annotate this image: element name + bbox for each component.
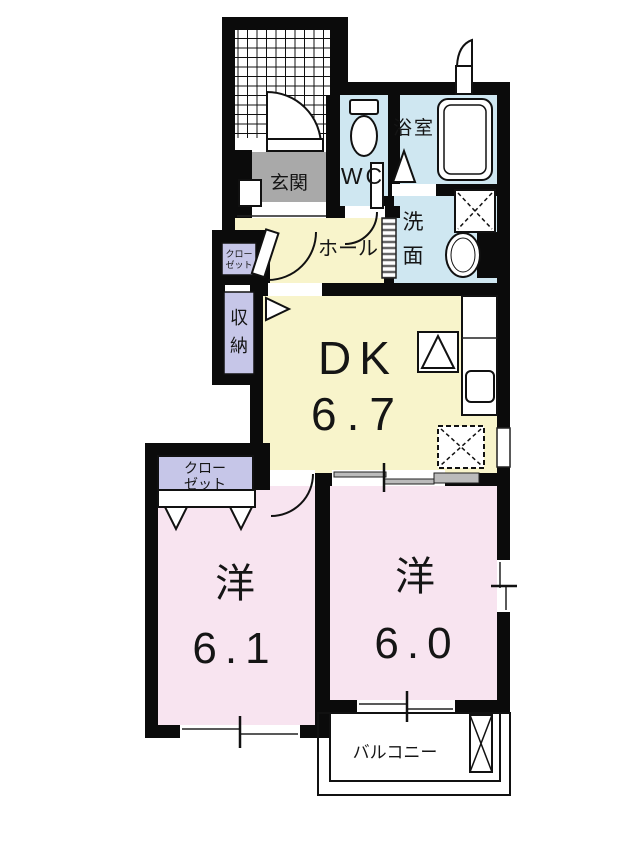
hall-closet <box>222 243 256 275</box>
label-wash-1: 洗 <box>403 211 424 234</box>
label-wash-2: 面 <box>403 245 424 268</box>
label-bedroom2: 洋 <box>395 555 435 599</box>
refrigerator-space-icon <box>438 426 484 468</box>
kitchen-counter <box>462 296 497 415</box>
label-hall-closet-2: ゼット <box>225 259 252 270</box>
bedroom1-closet-front <box>158 490 255 507</box>
label-dk-area: 6.7 <box>311 388 405 440</box>
accordion-door-icon <box>382 218 396 278</box>
balcony-unit-icon <box>470 715 492 772</box>
bath-door-opening <box>392 184 436 196</box>
label-hall-closet-1: クロー <box>225 249 252 259</box>
window-dk-right <box>497 428 510 467</box>
storage-room <box>224 292 254 374</box>
washbasin-icon <box>446 233 480 277</box>
label-bedroom2-area: 6.0 <box>374 619 459 668</box>
dk-bedroom1-door-opening <box>270 470 315 486</box>
washing-machine-icon <box>455 190 495 232</box>
label-dk: DK <box>318 332 398 384</box>
bathtub-icon <box>438 99 492 180</box>
label-storage-2: 納 <box>230 336 248 356</box>
hall-dk-door-opening <box>268 283 322 296</box>
label-balcony: バルコニー <box>353 743 438 762</box>
floor-plan-svg: 玄関 WC 浴室 洗 面 ホール クロー ゼット 収 納 DK 6.7 クロー … <box>0 0 640 853</box>
floor-plan: 玄関 WC 浴室 洗 面 ホール クロー ゼット 収 納 DK 6.7 クロー … <box>0 0 640 853</box>
label-storage-1: 収 <box>230 308 248 328</box>
label-genkan: 玄関 <box>270 172 308 194</box>
label-bedroom1-closet-1: クロー <box>184 460 226 476</box>
label-bedroom1-area: 6.1 <box>192 624 277 673</box>
label-bedroom1-closet-2: ゼット <box>184 476 226 492</box>
range-icon <box>418 332 458 372</box>
label-hall: ホール <box>318 238 378 260</box>
kitchen-sink-icon <box>466 371 494 402</box>
shoe-cabinet-icon <box>239 180 261 206</box>
toilet-icon <box>350 100 378 156</box>
label-bath: 浴室 <box>393 117 435 139</box>
label-bedroom1: 洋 <box>215 562 255 606</box>
label-wc: WC <box>341 163 385 189</box>
